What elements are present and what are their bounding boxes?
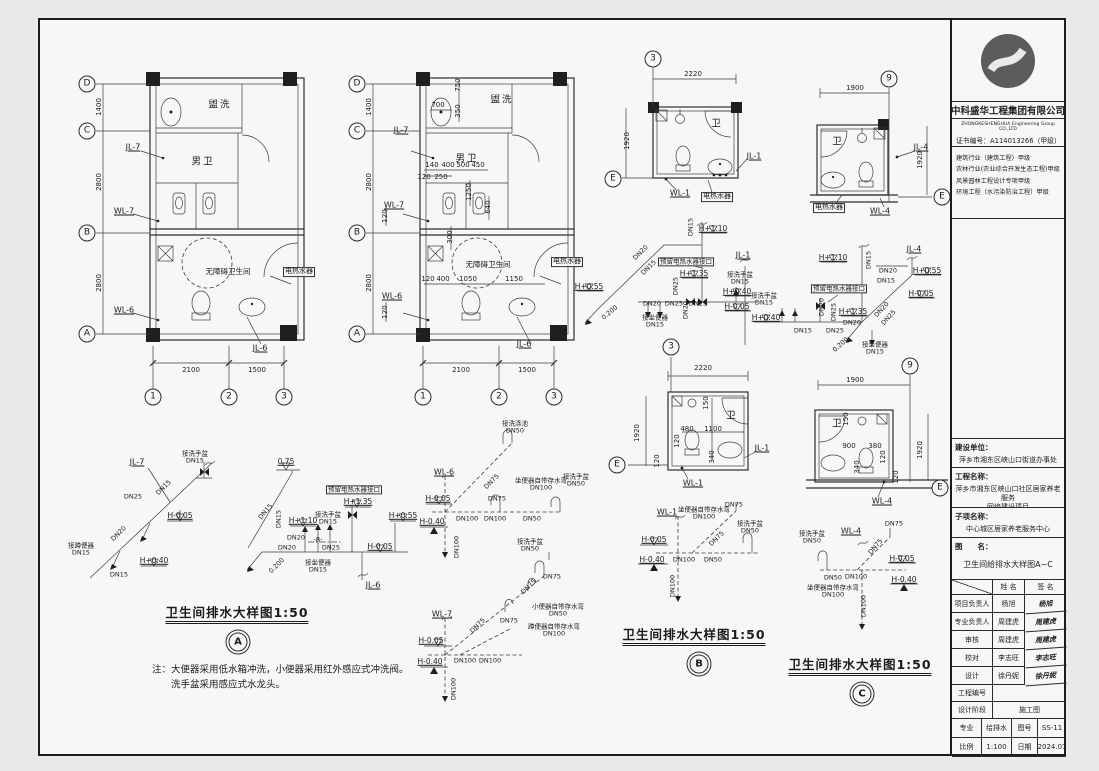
company-name-en: ZHONGKESHENGHUA Engineering Group CO.,LT… [952, 122, 1064, 132]
row-role: 专业负责人 [952, 613, 993, 631]
cert-label: 证书编号： [956, 137, 990, 145]
major-figno-row: 专业 给排水 图号 SS-11 [952, 719, 1064, 738]
row-role: 校对 [952, 649, 993, 667]
row-role: 审核 [952, 631, 993, 649]
col-header-name: 姓 名 [993, 580, 1025, 595]
wl7-iso-linework [420, 552, 549, 702]
row-name: 徐丹妮 [993, 667, 1025, 685]
date-value: 2024.07 [1038, 738, 1066, 757]
row-role: 项目负责人 [952, 595, 993, 613]
row-name: 周建虎 [993, 631, 1025, 649]
jl7-iso-linework [90, 461, 215, 578]
drawing-name-section: 图 名： 卫生间给排水大样图A~C [952, 538, 1064, 580]
row-name: 李志旺 [993, 649, 1025, 667]
plan-a-linework [96, 72, 304, 389]
project-label: 工程名称： [955, 471, 1061, 482]
wl4-iso-linework [818, 528, 918, 630]
qualification-item: 风景园林工程设计专项甲级 [956, 176, 1064, 187]
wl1-iso-linework [638, 503, 760, 602]
row-name: 周建虎 [993, 613, 1025, 631]
plan-c-top-linework [622, 68, 748, 192]
jl6-iso-linework [247, 463, 416, 580]
signature-table: 姓 名 签 名 项目负责人 杨旭 杨旭 专业负责人 周建虎 周建虎 审核 周建虎… [952, 580, 1064, 685]
project-no-label: 工程编号 [952, 685, 993, 702]
drawing-name-value: 卫生间给排水大样图A~C [955, 560, 1061, 570]
figno-label: 图号 [1012, 719, 1038, 738]
title-block: 中科盛华工程集团有限公司 ZHONGKESHENGHUA Engineering… [950, 18, 1066, 756]
qualification-item: 建筑行业（建筑工程）甲级 [956, 153, 1064, 164]
company-name: 中科盛华工程集团有限公司 [952, 102, 1064, 119]
owner-value: 萍乡市湘东区峡山口街道办事处 [955, 456, 1061, 465]
drawing-sheet-page: DCBA140028002800盥洗JL-7男卫WL-7无障碍卫生间电热水器WL… [0, 0, 1099, 771]
major-value: 给排水 [982, 719, 1012, 738]
logo-swoosh-icon [979, 32, 1037, 90]
owner-label: 建设单位： [955, 442, 1061, 453]
project-no-value [993, 685, 1066, 702]
subitem-label: 子项名称： [955, 511, 1061, 522]
blank-panel [952, 219, 1064, 439]
cert-no: A114013266（甲级） [990, 137, 1061, 145]
scale-date-row: 比例 1:100 日期 2024.07 [952, 738, 1064, 757]
qualification-item: 农林行业(农业综合开发生态工程)甲级 [956, 164, 1064, 175]
qualification-list: 建筑行业（建筑工程）甲级 农林行业(农业综合开发生态工程)甲级 风景园林工程设计… [952, 147, 1064, 219]
subitem-value: 中心城区居家养老服务中心 [955, 525, 1061, 534]
scale-label: 比例 [952, 738, 982, 757]
company-logo [952, 20, 1064, 102]
plan-b-dim-lines [386, 80, 545, 322]
company-cert: ZHONGKESHENGHUA Engineering Group CO.,LT… [952, 119, 1064, 147]
design-stage-value: 施工图 [993, 702, 1066, 719]
jl1-iso-linework [577, 222, 758, 345]
row-name: 杨旭 [993, 595, 1025, 613]
row-role: 设计 [952, 667, 993, 685]
drawing-linework [0, 0, 1099, 771]
table-corner-cell [952, 580, 993, 595]
owner-section: 建设单位： 萍乡市湘东区峡山口街道办事处 [952, 439, 1064, 468]
scale-value: 1:100 [982, 738, 1012, 757]
wl6-iso-linework [420, 430, 560, 558]
plan-c-mid-linework [628, 357, 757, 479]
project-value: 萍乡市湘东区峡山口社区居家养老服务 网络建设项目 [955, 485, 1061, 508]
drawing-name-label: 图 名： [955, 541, 1061, 552]
design-stage-label: 设计阶段 [952, 702, 993, 719]
subitem-section: 子项名称： 中心城区居家养老服务中心 [952, 508, 1064, 538]
plan-d-mid-linework [806, 375, 948, 497]
major-label: 专业 [952, 719, 982, 738]
figno-value: SS-11 [1038, 719, 1066, 738]
project-section: 工程名称： 萍乡市湘东区峡山口社区居家养老服务 网络建设项目 [952, 468, 1064, 508]
plan-b-linework [366, 72, 574, 389]
plan-d-top-linework [810, 88, 932, 207]
jl4-iso-linework [754, 244, 941, 346]
date-label: 日期 [1012, 738, 1038, 757]
row-signature: 徐丹妮 [1024, 666, 1066, 687]
design-stage-row: 设计阶段 施工图 [952, 702, 1064, 719]
project-no-row: 工程编号 [952, 685, 1064, 702]
col-header-sign: 签 名 [1025, 580, 1066, 595]
qualification-item: 环境工程（水污染防治工程）甲级 [956, 187, 1064, 198]
